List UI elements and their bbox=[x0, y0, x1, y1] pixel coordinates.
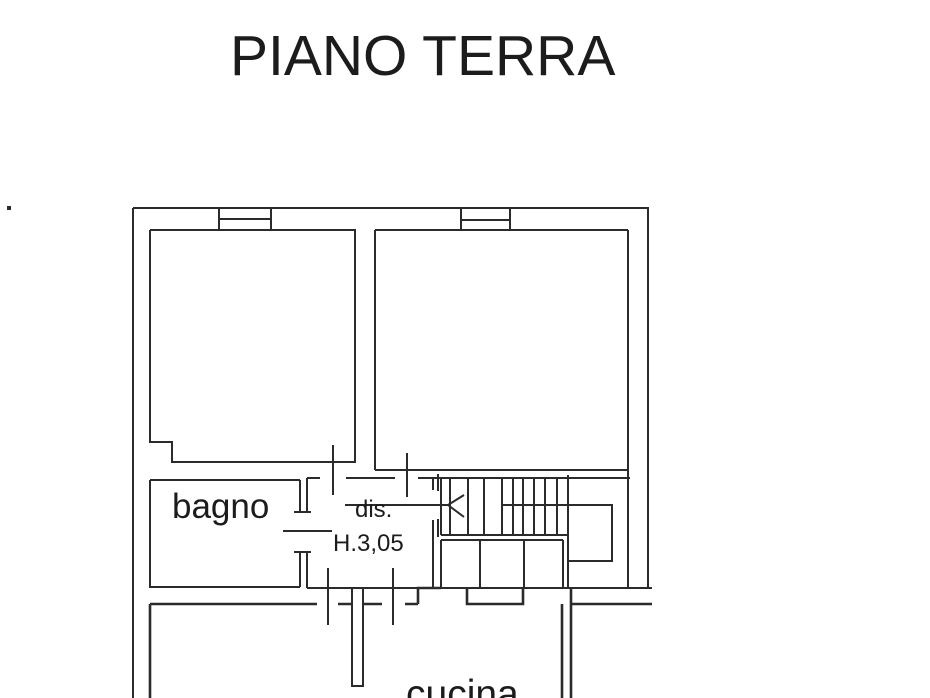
under-stair-closets bbox=[441, 540, 568, 588]
bathroom-door bbox=[283, 512, 332, 552]
room-label-kitchen: cucina bbox=[406, 675, 519, 698]
floor-plan-page: PIANO TERRA bbox=[0, 0, 930, 698]
staircase bbox=[441, 475, 612, 588]
room-top-left-walls bbox=[150, 230, 355, 462]
artifact-dot bbox=[7, 206, 11, 210]
window-top-left bbox=[219, 209, 271, 230]
room-label-bathroom: bagno bbox=[172, 489, 269, 524]
room-label-hallway: dis. bbox=[355, 498, 392, 522]
floor-plan-drawing bbox=[0, 0, 930, 698]
wall-stub bbox=[352, 588, 363, 686]
kitchen-walls bbox=[150, 588, 652, 698]
window-top-right bbox=[461, 209, 510, 230]
ceiling-height-annotation: H.3,05 bbox=[333, 532, 404, 556]
